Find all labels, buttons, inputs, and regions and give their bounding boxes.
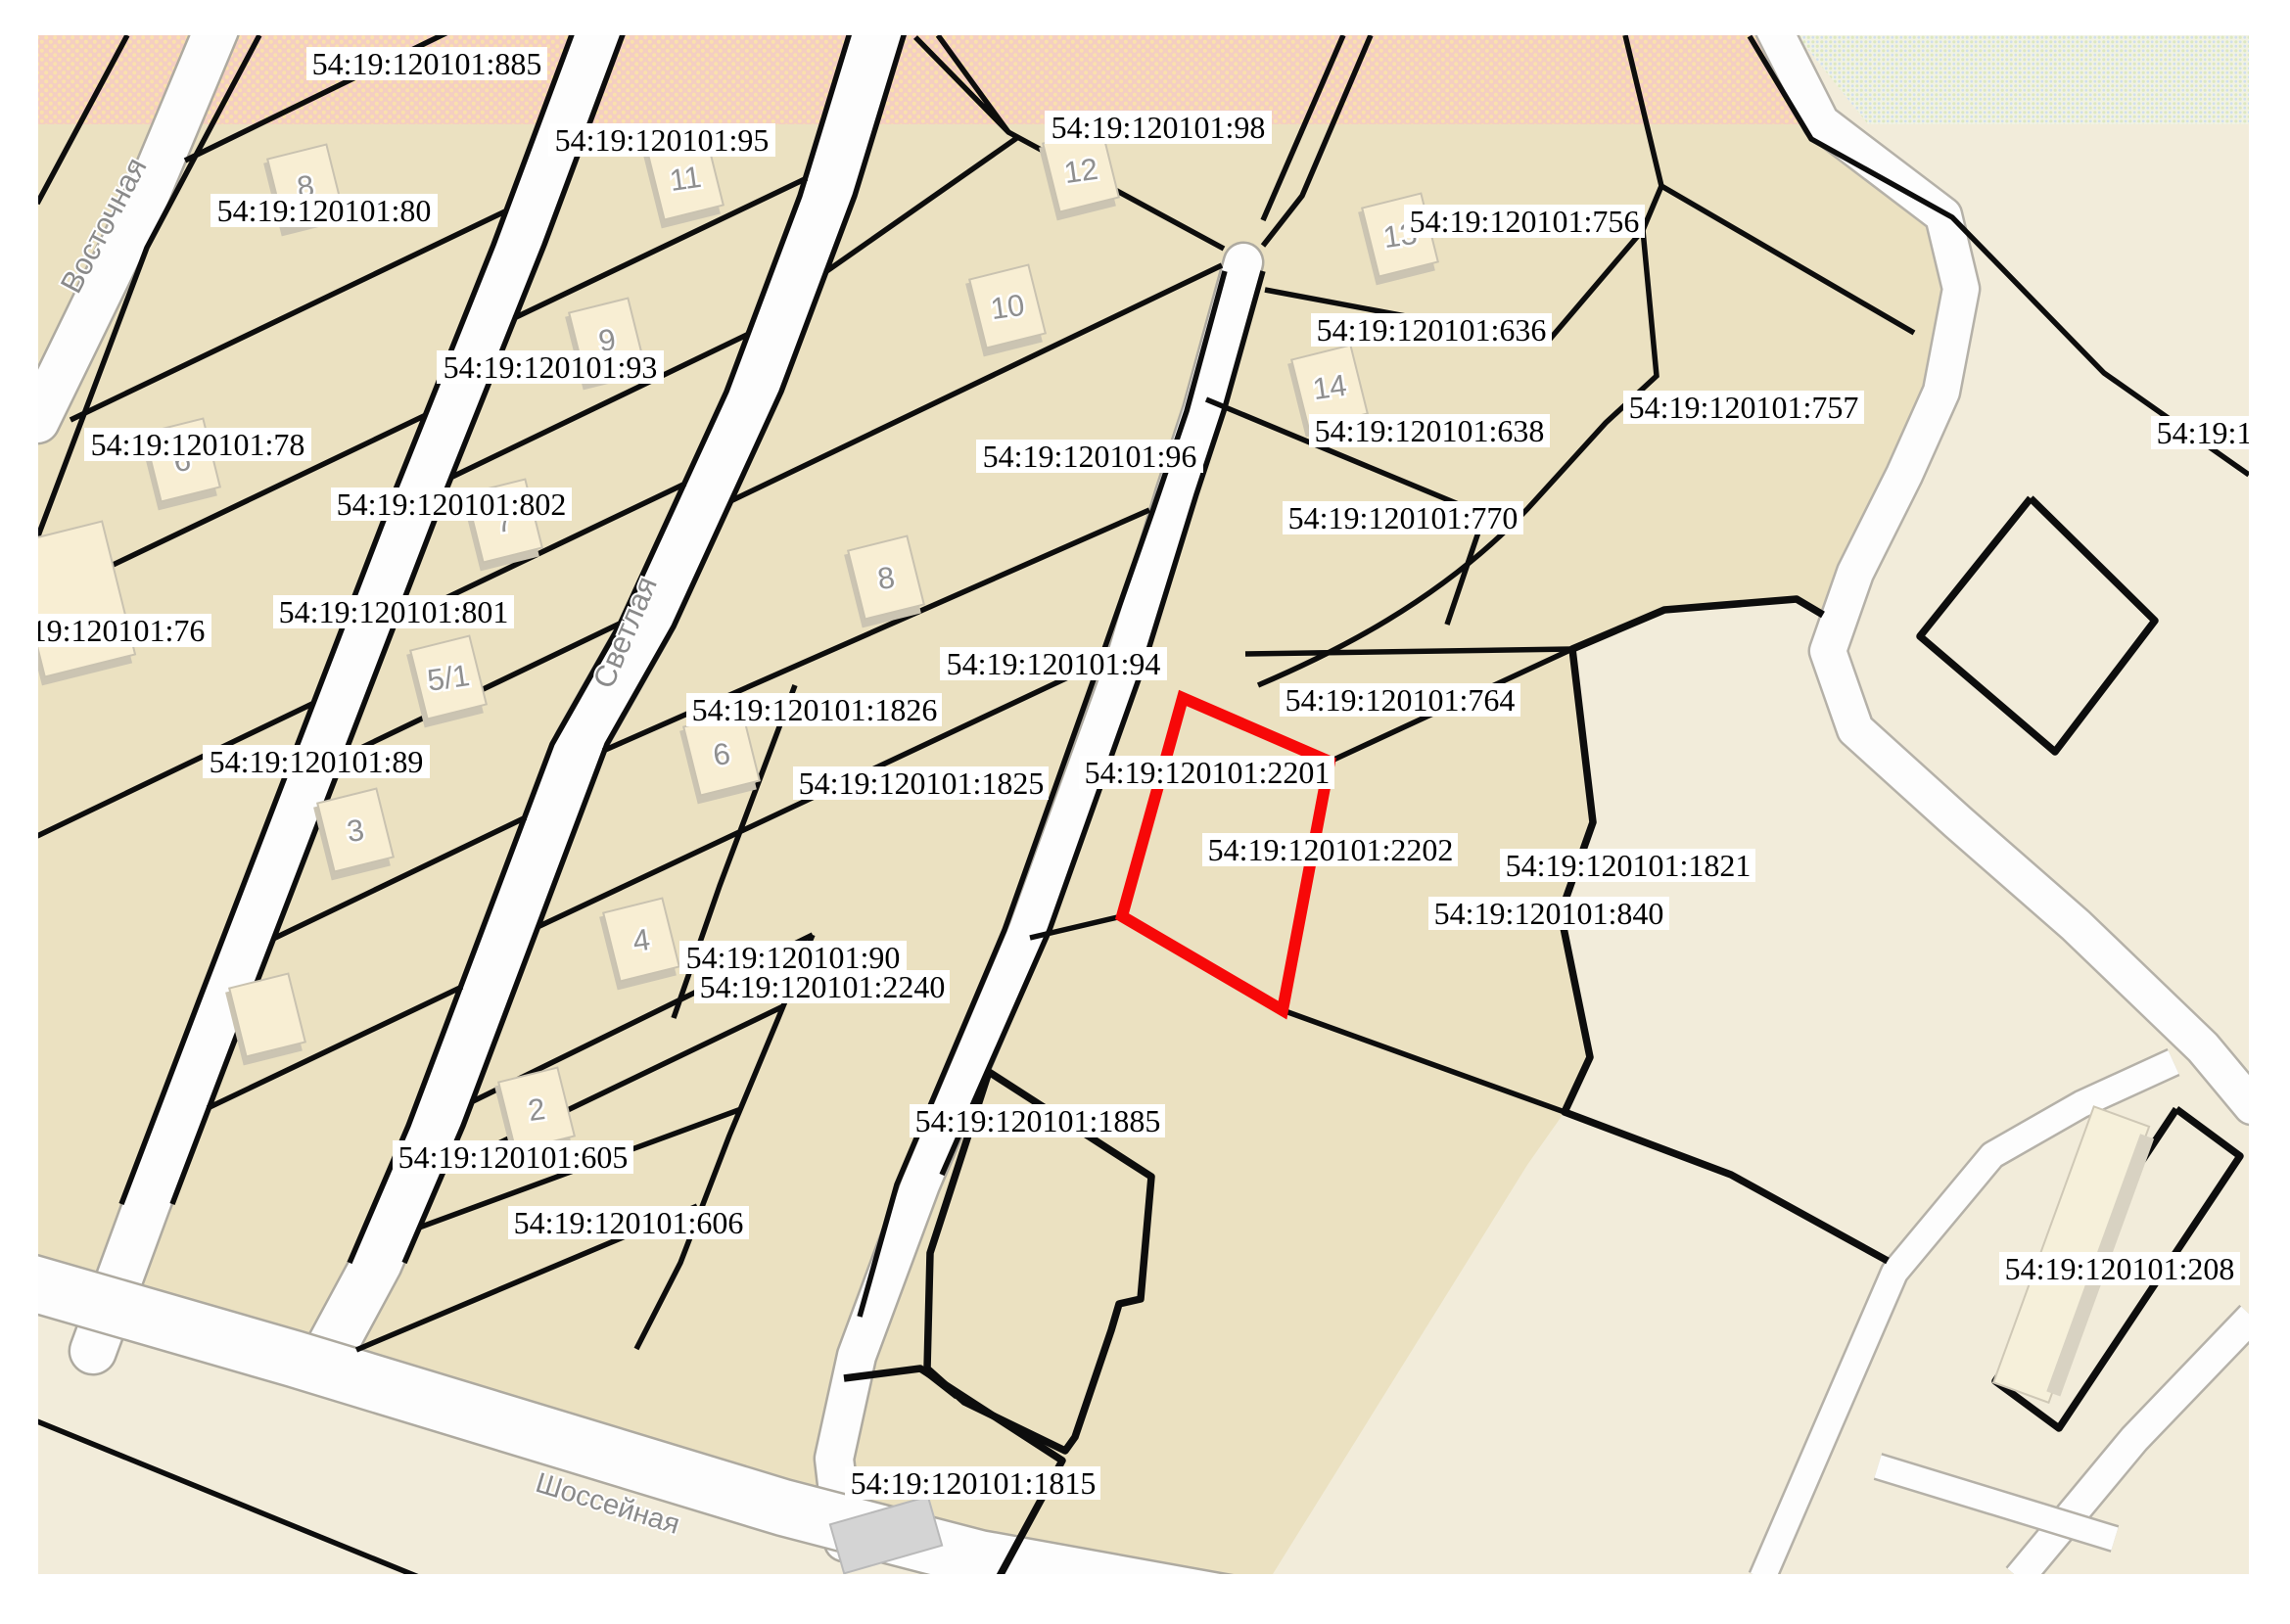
svg-text:54:19:120101:840: 54:19:120101:840 [1434, 896, 1664, 931]
svg-text:54:19:120101:605: 54:19:120101:605 [398, 1139, 629, 1175]
svg-text:54:19:120101:89: 54:19:120101:89 [210, 744, 424, 779]
svg-text:11: 11 [668, 160, 704, 198]
svg-text:54:19:120101:98: 54:19:120101:98 [1052, 110, 1266, 145]
svg-text:5/1: 5/1 [425, 658, 472, 698]
svg-text:54:19:120101:80: 54:19:120101:80 [217, 193, 432, 228]
svg-text:12: 12 [1062, 152, 1100, 190]
svg-text:54:19:120101:95: 54:19:120101:95 [555, 122, 770, 158]
svg-text:54:19:120101:756: 54:19:120101:756 [1410, 204, 1640, 239]
svg-text:54:19:120101:638: 54:19:120101:638 [1315, 413, 1545, 448]
svg-text:54:19:120101:78: 54:19:120101:78 [91, 427, 305, 462]
svg-text:54:19:120101:636: 54:19:120101:636 [1317, 312, 1547, 348]
svg-text:54:19:120101:802: 54:19:120101:802 [337, 487, 567, 522]
svg-text:54:19:120101:1815: 54:19:120101:1815 [851, 1465, 1097, 1501]
svg-text:54:19:120101:93: 54:19:120101:93 [444, 349, 658, 385]
svg-text:54:19:120101:2201: 54:19:120101:2201 [1085, 755, 1331, 790]
svg-text:14: 14 [1311, 368, 1349, 406]
svg-text:54:19:120101:757: 54:19:120101:757 [1629, 390, 1859, 425]
svg-text:54:19:120101:1825: 54:19:120101:1825 [799, 766, 1045, 801]
svg-text:54:19:120101:770: 54:19:120101:770 [1288, 500, 1519, 535]
svg-text:54:19:120101:208: 54:19:120101:208 [2005, 1251, 2235, 1286]
svg-text:54:19:120101:1821: 54:19:120101:1821 [1506, 848, 1752, 883]
svg-text:54:19:120101:606: 54:19:120101:606 [514, 1205, 744, 1240]
svg-text:10: 10 [989, 288, 1027, 326]
svg-text:54:19:120101:94: 54:19:120101:94 [947, 646, 1161, 681]
svg-text:54:19:120101:2202: 54:19:120101:2202 [1208, 832, 1454, 867]
svg-text:54:19:120101:801: 54:19:120101:801 [279, 594, 509, 629]
svg-text:54:19:120101:1826: 54:19:120101:1826 [692, 692, 938, 727]
svg-text:54:19:120101:96: 54:19:120101:96 [983, 439, 1197, 474]
svg-text:54:19:120101:764: 54:19:120101:764 [1285, 682, 1516, 718]
svg-text:54:19:120101:2240: 54:19:120101:2240 [700, 969, 946, 1004]
svg-text:54:19:120101:1885: 54:19:120101:1885 [915, 1103, 1161, 1138]
svg-text:54:19:120101:885: 54:19:120101:885 [312, 46, 542, 81]
